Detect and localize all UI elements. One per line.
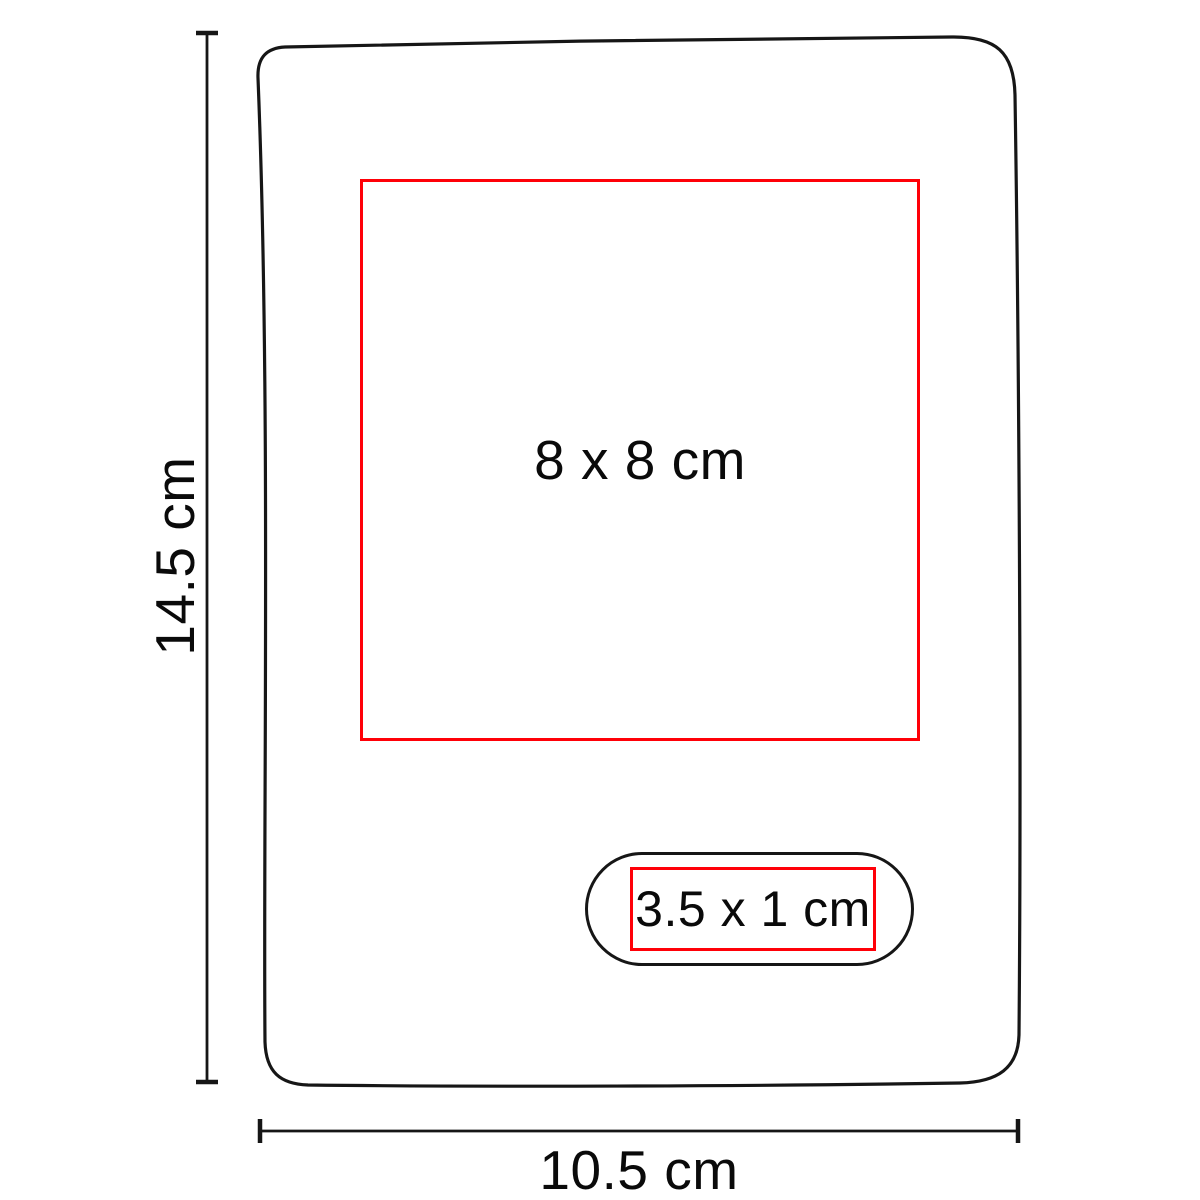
main-print-area-label: 8 x 8 cm <box>534 428 746 492</box>
width-dimension-label: 10.5 cm <box>539 1138 738 1200</box>
small-print-area: 3.5 x 1 cm <box>630 867 876 951</box>
badge-outline: 3.5 x 1 cm <box>585 852 914 966</box>
main-print-area: 8 x 8 cm <box>360 179 920 741</box>
height-dimension-label: 14.5 cm <box>143 456 207 655</box>
dimension-diagram: 8 x 8 cm 3.5 x 1 cm 14.5 cm 10.5 cm <box>0 0 1200 1200</box>
small-print-area-label: 3.5 x 1 cm <box>635 880 871 938</box>
